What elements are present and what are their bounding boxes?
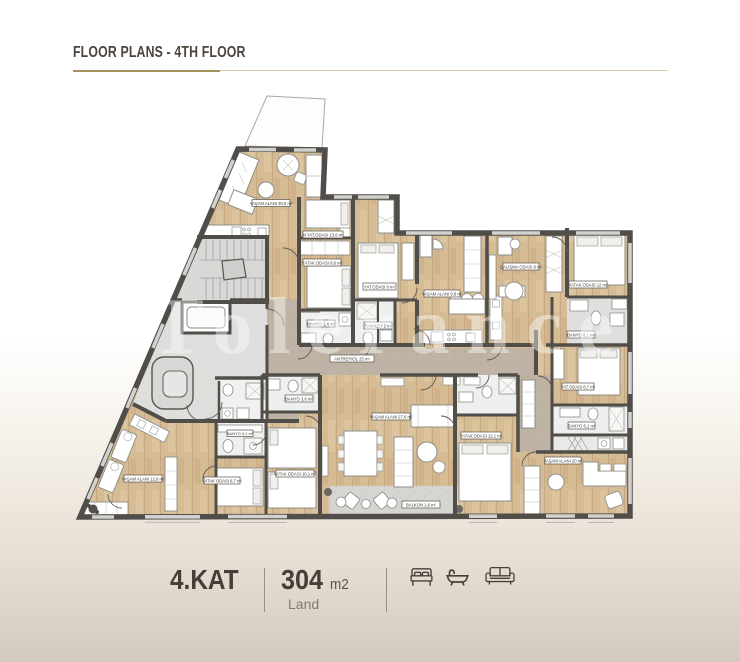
svg-text:YAŞAM ALANI 30,6 m²: YAŞAM ALANI 30,6 m² — [250, 201, 293, 206]
svg-text:BALKON 1,6 m²: BALKON 1,6 m² — [406, 502, 437, 507]
svg-text:YATAK ODASI 10,1 m²: YATAK ODASI 10,1 m² — [274, 471, 317, 476]
svg-text:YAŞAM ALANI 27,6 m²: YAŞAM ALANI 27,6 m² — [370, 414, 413, 419]
svg-text:YAŞAM ALANI 20 m²: YAŞAM ALANI 20 m² — [543, 458, 583, 463]
svg-text:YATAK ODASI 12,1 m²: YATAK ODASI 12,1 m² — [460, 433, 503, 438]
svg-text:YATAK ODASI 9,6 m²: YATAK ODASI 9,6 m² — [302, 260, 343, 265]
svg-text:Tolerance: Tolerance — [151, 283, 630, 371]
svg-text:YATAK ODASI 8,7 m²: YATAK ODASI 8,7 m² — [202, 478, 243, 483]
svg-text:YAT.ODASI 8,7 m²: YAT.ODASI 8,7 m² — [561, 384, 596, 389]
svg-text:M.YAT.ODASI 13,6 m²: M.YAT.ODASI 13,6 m² — [302, 232, 344, 237]
svg-text:BANYO 6,1 m²: BANYO 6,1 m² — [568, 423, 596, 428]
svg-text:BANYO 3,1 m²: BANYO 3,1 m² — [227, 431, 254, 436]
svg-text:YAŞAM ALANI 12,6 m²: YAŞAM ALANI 12,6 m² — [122, 476, 165, 481]
svg-text:ÇALIŞMA ODASI 8 m²: ÇALIŞMA ODASI 8 m² — [500, 264, 542, 269]
svg-text:BANYO 3,6 m²: BANYO 3,6 m² — [285, 396, 313, 401]
